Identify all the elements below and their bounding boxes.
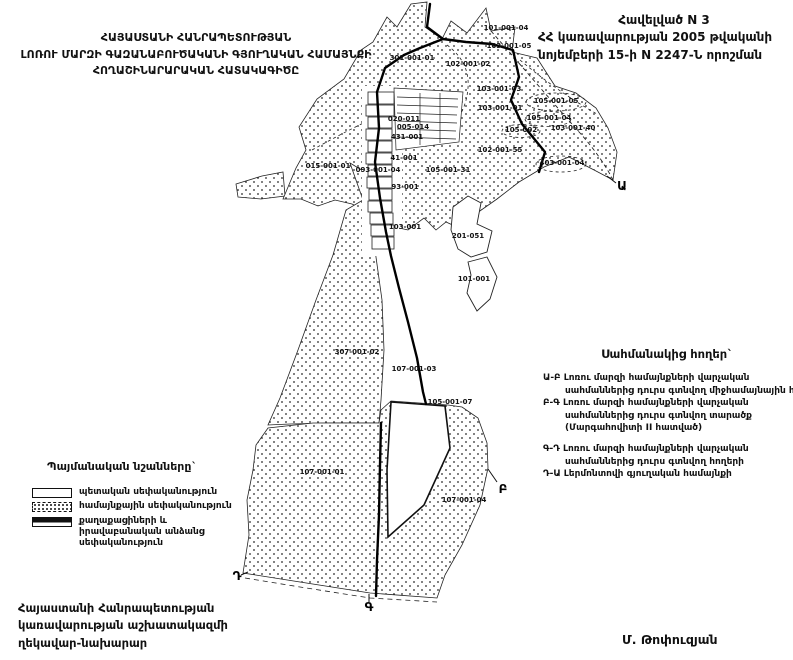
dotted-swatch-icon bbox=[32, 502, 72, 512]
map-canvas bbox=[0, 0, 793, 660]
map-sheet: 101-001-04103-001-05301-001-01102-001-02… bbox=[0, 0, 793, 660]
appendix-line1: Հավելված N 3 bbox=[538, 12, 790, 29]
map-title-line2: ԼՈՌՈՒ ՄԱՐԶԻ ԳԱԶԱՆԱԲՈՒԾԱԿԱՆԻ ԳՅՈՒՂԱԿԱՆ ՀԱ… bbox=[10, 47, 382, 64]
issuing-authority-line3: ղեկավար-նախարար bbox=[18, 635, 228, 652]
appendix-line3: նոյեմբերի 15-ի N 2247-Ն որոշման bbox=[538, 47, 790, 64]
adjacent-lands-line: սահմաններից դուրս գտնվող տարածք bbox=[543, 410, 791, 423]
map-title-line3: ՀՈՂԱՇԻՆԱՐԱՐԱԿԱՆ ՀԱՏԱԿԱԳԻԾԸ bbox=[10, 63, 382, 80]
map-title-line1: ՀԱՅԱՍՏԱՆԻ ՀԱՆՐԱՊԵՏՈՒԹՅԱՆ bbox=[10, 30, 382, 47]
appendix-reference: Հավելված N 3 ՀՀ կառավարության 2005 թվակա… bbox=[538, 12, 790, 64]
adjacent-lands-title: Սահմանակից հողեր` bbox=[543, 346, 791, 362]
issuing-authority: Հայաստանի Հանրապետության կառավարության ա… bbox=[18, 600, 228, 652]
adjacent-lands-note: Սահմանակից հողեր` Ա-Բ Լոռու մարզի համայն… bbox=[543, 346, 791, 481]
legend-item-label: պետական սեփականություն bbox=[79, 487, 217, 498]
plain-swatch-icon bbox=[32, 488, 72, 498]
legend-items: պետական սեփականությունհամայնքային սեփակա… bbox=[32, 487, 242, 549]
map-title: ՀԱՅԱՍՏԱՆԻ ՀԱՆՐԱՊԵՏՈՒԹՅԱՆ ԼՈՌՈՒ ՄԱՐԶԻ ԳԱԶ… bbox=[10, 30, 382, 80]
signature-name: Մ. Թոփուզյան bbox=[622, 632, 718, 647]
adjacent-lands-line bbox=[543, 435, 791, 443]
legend-item: քաղաքացիների և իրավաբանական անձանց սեփակ… bbox=[32, 516, 242, 550]
adjacent-lands-line: Բ-Գ Լոռու մարզի համայնքների վարչական bbox=[543, 397, 791, 410]
east-parcel-lower bbox=[467, 257, 497, 311]
adjacent-lands-line: Դ-Ա Լերմոնտովի գյուղական համայնքի bbox=[543, 468, 791, 481]
adjacent-lands-line: Գ-Դ Լոռու մարզի համայնքների վարչական bbox=[543, 443, 791, 456]
south-region bbox=[243, 401, 488, 598]
legend-item: համայնքային սեփականություն bbox=[32, 501, 242, 512]
legend-item-label: համայնքային սեփականություն bbox=[79, 501, 232, 512]
hatched-swatch-icon bbox=[32, 517, 72, 527]
legend-title: Պայմանական նշանները` bbox=[32, 460, 212, 473]
adjacent-lands-line: Ա-Բ Լոռու մարզի համայնքների վարչական bbox=[543, 372, 791, 385]
legend-item-label: քաղաքացիների և իրավաբանական անձանց սեփակ… bbox=[79, 516, 237, 550]
west-strip-region bbox=[236, 172, 285, 199]
issuing-authority-line1: Հայաստանի Հանրապետության bbox=[18, 600, 228, 617]
issuing-authority-line2: կառավարության աշխատակազմի bbox=[18, 617, 228, 634]
legend-item: պետական սեփականություն bbox=[32, 487, 242, 498]
appendix-line2: ՀՀ կառավարության 2005 թվականի bbox=[538, 29, 790, 46]
adjacent-lands-line: սահմաններից դուրս գտնվող հողերի bbox=[543, 456, 791, 469]
adjacent-lands-line: սահմաններից դուրս գտնվող միջհամայնային հ… bbox=[543, 385, 791, 398]
adjacent-lands-lines: Ա-Բ Լոռու մարզի համայնքների վարչականսահմ… bbox=[543, 372, 791, 481]
adjacent-lands-line: (Մարգահովիտի II հատված) bbox=[543, 422, 791, 435]
legend: Պայմանական նշանները` պետական սեփականությ… bbox=[32, 460, 242, 552]
